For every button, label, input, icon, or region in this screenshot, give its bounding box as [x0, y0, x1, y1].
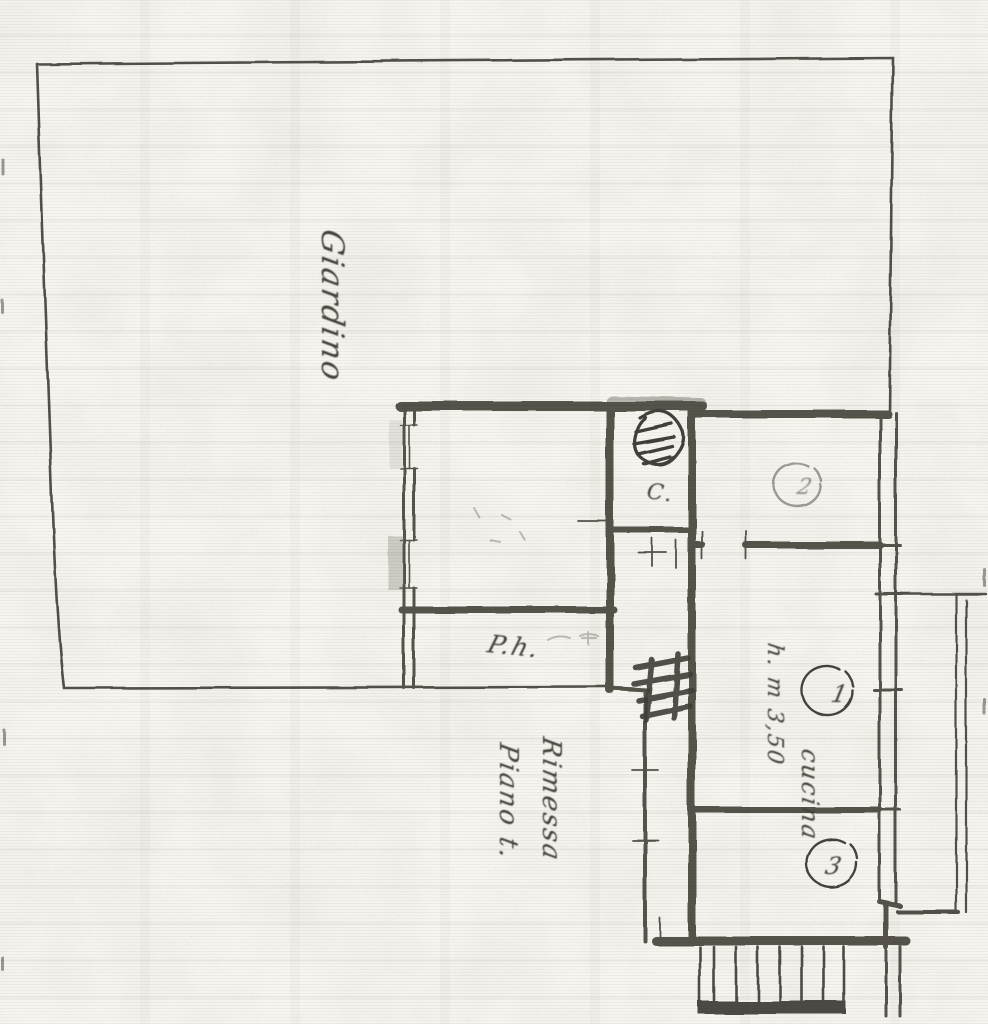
scan-noise-layer	[0, 0, 988, 1024]
floorplan-canvas: Giardino Piano t. Rimessa h. m 3,50 cuci…	[0, 0, 988, 1024]
scanned-floorplan-page: Giardino Piano t. Rimessa h. m 3,50 cuci…	[0, 0, 988, 1024]
